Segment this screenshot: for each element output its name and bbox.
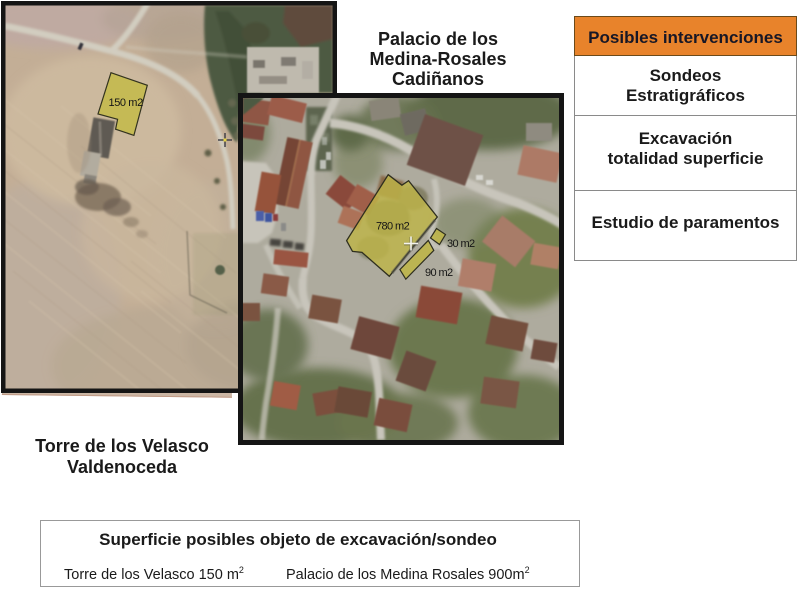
svg-text:780 m2: 780 m2: [376, 221, 410, 233]
svg-text:150 m2: 150 m2: [109, 97, 144, 109]
svg-text:90 m2: 90 m2: [425, 267, 453, 279]
svg-text:30 m2: 30 m2: [447, 238, 475, 250]
